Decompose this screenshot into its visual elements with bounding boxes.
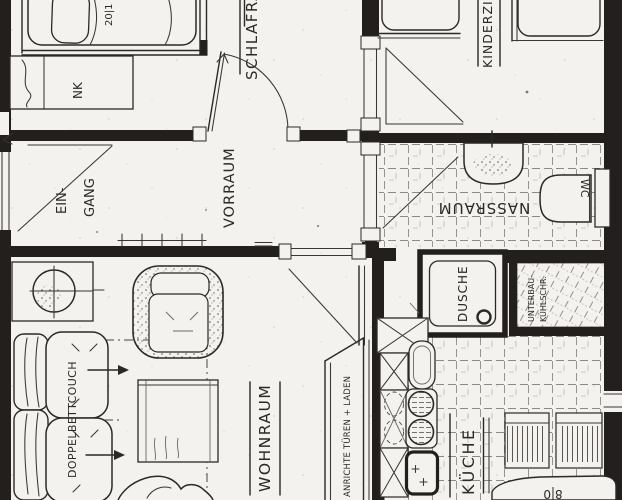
room-label-eingang-2: GANG: [83, 178, 98, 217]
wall-vorraum-bottom: [11, 246, 285, 257]
room-label-dusche: DUSCHE: [456, 265, 470, 322]
kuehlschrank-label-2: KÜHLSCHR.: [538, 276, 548, 322]
kueche-cabinet-2: [380, 390, 408, 448]
room-label-kinderzimmer: KINDERZIM.: [480, 0, 495, 68]
wall-right: [604, 0, 622, 500]
kueche-herd: [406, 389, 437, 448]
dusche: DUSCHE: [420, 252, 505, 335]
room-label-nassraum: NASSRAUM: [438, 199, 531, 217]
wall-divider-top: [362, 0, 379, 38]
couchtisch: [138, 380, 218, 462]
room-label-kueche: KÜCHE: [459, 427, 478, 495]
waschtisch: [12, 262, 104, 321]
schlafraum-label-group: SCHLAFRAUM: [240, 0, 261, 80]
tisch-fragment: 8|0: [543, 487, 562, 500]
doppelbettcouch-label: DOPPELBETTCOUCH: [66, 361, 79, 478]
wall-kuehlschrank-top: [505, 250, 606, 263]
room-label-wc: WC: [578, 179, 591, 198]
nachtkaestchen: NK: [10, 56, 133, 109]
nachtkaestchen-label: NK: [71, 81, 85, 99]
wall-kuehlschrank-bottom: [509, 327, 606, 336]
kinderbett-links: [382, 0, 459, 30]
esstisch-stuhl-1: [505, 413, 549, 468]
pillow: [51, 0, 90, 44]
esstisch-stuhl-2: [556, 413, 602, 468]
kueche-abwasch: [407, 452, 438, 494]
room-label-wohnraum: WOHNRAUM: [256, 384, 274, 492]
floorplan-drawing: 20|1 NK SCHLAFRAUM KINDERZIM.: [0, 0, 622, 500]
kinderbett-rechts: [518, 0, 600, 36]
kueche-cabinet-3: [380, 448, 408, 497]
doppelbettcouch: DOPPELBETTCOUCH: [14, 332, 112, 500]
room-label-eingang-1: EIN-: [55, 187, 70, 214]
sessel: [133, 266, 223, 358]
bed-dimension-fragment: 20|1: [104, 4, 115, 26]
kueche-cabinet-1: [380, 353, 408, 390]
wc-toilet: WC: [540, 169, 610, 227]
room-label-vorraum: VORRAUM: [222, 147, 238, 228]
room-label-schlafraum: SCHLAFRAUM: [243, 0, 261, 80]
wall-vorraum-top-left: [11, 130, 205, 141]
anrichte-label: ANRICHTE TÜREN + LADEN: [342, 376, 353, 497]
kueche-spuele: [409, 341, 435, 389]
floorplan-page: 20|1 NK SCHLAFRAUM KINDERZIM.: [0, 0, 622, 500]
kuehlschrank-label-1: UNTERBAU-: [527, 275, 536, 322]
